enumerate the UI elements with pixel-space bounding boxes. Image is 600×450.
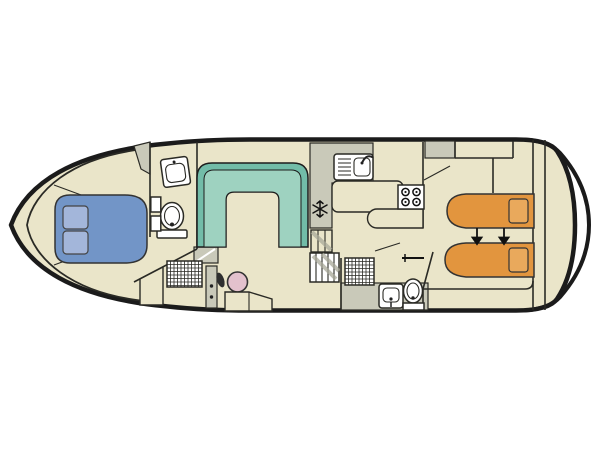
boat-floor-plan bbox=[0, 0, 600, 450]
pillow bbox=[63, 206, 88, 229]
bow-shower-tray bbox=[167, 261, 202, 287]
aft-cabin-wardrobe bbox=[425, 141, 455, 158]
aft-shower-tray bbox=[345, 258, 374, 285]
galley-counter bbox=[332, 181, 403, 212]
pillow bbox=[63, 231, 88, 254]
console-knob bbox=[210, 295, 213, 298]
companionway-stairs bbox=[310, 253, 339, 282]
wall-shelf bbox=[151, 216, 161, 231]
wall-shelf bbox=[151, 197, 161, 212]
console-knob bbox=[210, 284, 213, 287]
stove-icon bbox=[398, 185, 424, 209]
single-bed-bottom bbox=[445, 243, 534, 277]
aft-washbasin-icon bbox=[379, 284, 403, 308]
single-bed-top bbox=[447, 194, 534, 228]
peninsula-worktop bbox=[368, 209, 424, 228]
companionway-landing bbox=[311, 230, 332, 252]
steering-wheel-icon bbox=[228, 272, 248, 292]
double-bed bbox=[55, 195, 147, 263]
galley-sink-icon bbox=[334, 154, 373, 180]
pillow bbox=[509, 248, 528, 272]
pillow bbox=[509, 199, 528, 223]
bow-washbasin-icon bbox=[160, 156, 191, 187]
aft-toilet-icon bbox=[403, 279, 424, 310]
